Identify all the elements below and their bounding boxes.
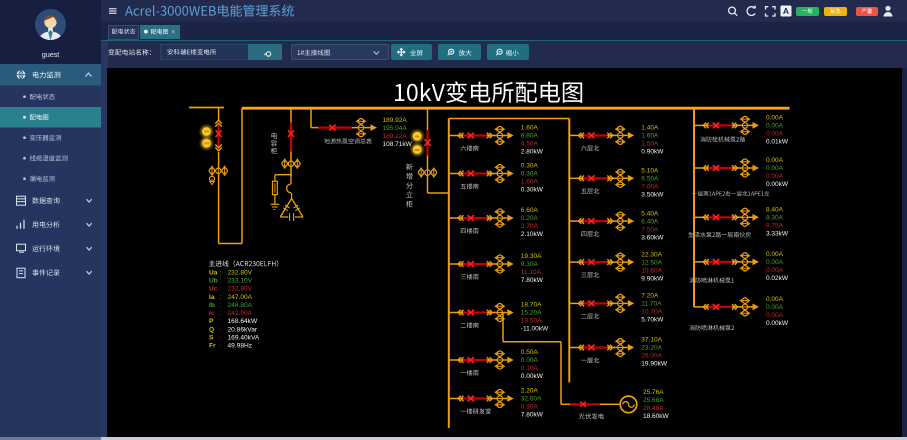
svg-text:242.00A: 242.00A bbox=[228, 310, 253, 317]
svg-text:1.60A: 1.60A bbox=[521, 179, 539, 186]
svg-text::: : bbox=[220, 335, 222, 342]
svg-text:0.90A: 0.90A bbox=[521, 404, 539, 411]
svg-text:2.80kW: 2.80kW bbox=[521, 149, 544, 156]
svg-text:168.64kW: 168.64kW bbox=[228, 318, 258, 325]
svg-text:5.10A: 5.10A bbox=[641, 168, 659, 175]
svg-text:7.80kW: 7.80kW bbox=[521, 412, 544, 419]
svg-text:Ic: Ic bbox=[209, 310, 215, 317]
svg-text:1.60A: 1.60A bbox=[641, 133, 659, 140]
svg-text:Ub: Ub bbox=[209, 277, 218, 284]
svg-text::: : bbox=[220, 277, 222, 284]
svg-text:0.30A: 0.30A bbox=[521, 163, 539, 170]
svg-text:15.20A: 15.20A bbox=[521, 310, 542, 317]
svg-text::: : bbox=[220, 302, 222, 309]
svg-text:3.70A: 3.70A bbox=[521, 223, 539, 230]
svg-text:8.40A: 8.40A bbox=[766, 207, 784, 214]
svg-text:ON: ON bbox=[415, 134, 420, 138]
svg-text:0.02kW: 0.02kW bbox=[766, 275, 789, 282]
svg-text:0.00A: 0.00A bbox=[766, 165, 784, 172]
svg-text:P: P bbox=[209, 318, 214, 325]
svg-text:18.60kW: 18.60kW bbox=[643, 413, 670, 420]
svg-text:232.80V: 232.80V bbox=[228, 269, 253, 276]
svg-text:3.33kW: 3.33kW bbox=[766, 231, 789, 238]
svg-text:108.71kW: 108.71kW bbox=[383, 141, 413, 148]
svg-text:6.60A: 6.60A bbox=[521, 207, 539, 214]
svg-text:20.86kVar: 20.86kVar bbox=[228, 326, 258, 333]
svg-text:Ia: Ia bbox=[209, 294, 215, 301]
svg-text:11.10A: 11.10A bbox=[521, 269, 542, 276]
svg-text:0.00A: 0.00A bbox=[766, 312, 784, 319]
svg-text:4.50A: 4.50A bbox=[521, 141, 539, 148]
svg-text:2.10kW: 2.10kW bbox=[521, 231, 544, 238]
svg-text:5.40A: 5.40A bbox=[641, 210, 659, 217]
svg-text::: : bbox=[220, 326, 222, 333]
svg-text:5.70kW: 5.70kW bbox=[641, 317, 664, 324]
svg-text:3.60kW: 3.60kW bbox=[641, 234, 664, 241]
svg-text::: : bbox=[220, 269, 222, 276]
svg-text:9.30A: 9.30A bbox=[521, 261, 539, 268]
svg-text:0.00A: 0.00A bbox=[766, 173, 784, 180]
svg-text:0.00kW: 0.00kW bbox=[521, 373, 544, 380]
svg-text:7.50A: 7.50A bbox=[641, 226, 659, 233]
svg-text:23.20A: 23.20A bbox=[641, 345, 662, 352]
svg-text:22.30A: 22.30A bbox=[641, 251, 662, 258]
svg-text:169.40kVA: 169.40kVA bbox=[228, 335, 260, 342]
svg-text:19.30A: 19.30A bbox=[521, 253, 542, 260]
svg-text:0.00A: 0.00A bbox=[766, 304, 784, 311]
svg-text:2.20A: 2.20A bbox=[521, 388, 539, 395]
svg-text::: : bbox=[220, 318, 222, 325]
svg-text:189.12A: 189.12A bbox=[383, 133, 408, 140]
svg-text:0.00A: 0.00A bbox=[766, 267, 784, 274]
svg-text:0.00kW: 0.00kW bbox=[766, 320, 789, 327]
svg-text:Ib: Ib bbox=[209, 302, 215, 309]
svg-text:0.00A: 0.00A bbox=[766, 157, 784, 164]
svg-text:0.90kW: 0.90kW bbox=[641, 149, 664, 156]
svg-text:0.00A: 0.00A bbox=[521, 357, 539, 364]
svg-text:49.98Hz: 49.98Hz bbox=[228, 343, 253, 350]
svg-text:1.40A: 1.40A bbox=[641, 125, 659, 132]
svg-text:0.10A: 0.10A bbox=[521, 365, 539, 372]
svg-text:6.40A: 6.40A bbox=[641, 218, 659, 225]
svg-text:12.50A: 12.50A bbox=[641, 259, 662, 266]
svg-text:8.30A: 8.30A bbox=[766, 215, 784, 222]
svg-text:guest: guest bbox=[42, 50, 60, 59]
svg-text:0.00kW: 0.00kW bbox=[766, 181, 789, 188]
svg-text::: : bbox=[220, 286, 222, 293]
svg-text:32.60A: 32.60A bbox=[521, 396, 542, 403]
svg-text:0.00A: 0.00A bbox=[766, 115, 784, 122]
svg-text:8.75A: 8.75A bbox=[766, 223, 784, 230]
svg-text:18.70A: 18.70A bbox=[521, 302, 542, 309]
svg-text:OFF: OFF bbox=[204, 141, 210, 145]
svg-text:S: S bbox=[209, 335, 214, 342]
svg-text:7.20A: 7.20A bbox=[641, 293, 659, 300]
svg-text:19.90kW: 19.90kW bbox=[641, 361, 668, 368]
svg-text:6.80A: 6.80A bbox=[521, 133, 539, 140]
svg-text:15.60A: 15.60A bbox=[641, 267, 662, 274]
svg-text::: : bbox=[220, 343, 222, 350]
svg-text:A: A bbox=[783, 6, 789, 16]
svg-text:0.30kW: 0.30kW bbox=[521, 187, 544, 194]
svg-text:7.00A: 7.00A bbox=[641, 184, 659, 191]
svg-text:1.60A: 1.60A bbox=[521, 125, 539, 132]
svg-text:11.70A: 11.70A bbox=[641, 301, 662, 308]
svg-text:26.00A: 26.00A bbox=[641, 353, 662, 360]
svg-text:-11.00kW: -11.00kW bbox=[521, 326, 549, 333]
svg-text:Fr: Fr bbox=[209, 343, 216, 350]
svg-text:189.92A: 189.92A bbox=[383, 117, 408, 124]
svg-text:Ua: Ua bbox=[209, 269, 218, 276]
svg-text:0.50A: 0.50A bbox=[521, 349, 539, 356]
svg-text:232.80V: 232.80V bbox=[228, 286, 253, 293]
svg-text:37.10A: 37.10A bbox=[641, 337, 662, 344]
svg-text:OFF: OFF bbox=[414, 148, 420, 152]
svg-text:9.90kW: 9.90kW bbox=[641, 275, 664, 282]
svg-text:247.00A: 247.00A bbox=[228, 294, 253, 301]
svg-text:0.30A: 0.30A bbox=[521, 171, 539, 178]
svg-text:0.00A: 0.00A bbox=[766, 296, 784, 303]
svg-text:0.00A: 0.00A bbox=[766, 259, 784, 266]
svg-text:0.01kW: 0.01kW bbox=[766, 139, 789, 146]
svg-text:×: × bbox=[172, 30, 176, 36]
svg-text:Q: Q bbox=[209, 326, 214, 333]
svg-text:6.50A: 6.50A bbox=[641, 176, 659, 183]
svg-text:0.20A: 0.20A bbox=[521, 215, 539, 222]
svg-text:Uc: Uc bbox=[209, 286, 218, 293]
svg-text:25.76A: 25.76A bbox=[643, 389, 664, 396]
svg-text:1.50A: 1.50A bbox=[641, 141, 659, 148]
svg-text:10.70A: 10.70A bbox=[641, 309, 662, 316]
svg-text:ON: ON bbox=[204, 130, 209, 134]
svg-text:25.68A: 25.68A bbox=[643, 397, 664, 404]
svg-text:195.04A: 195.04A bbox=[383, 125, 408, 132]
svg-text:3.50kW: 3.50kW bbox=[641, 192, 664, 199]
svg-text:19.50A: 19.50A bbox=[521, 318, 542, 325]
svg-text:0.00A: 0.00A bbox=[766, 123, 784, 130]
svg-text:28.48A: 28.48A bbox=[643, 405, 664, 412]
svg-text:7.80kW: 7.80kW bbox=[521, 277, 544, 284]
svg-text:248.80A: 248.80A bbox=[228, 302, 253, 309]
svg-text:0.00A: 0.00A bbox=[766, 251, 784, 258]
svg-text::: : bbox=[220, 310, 222, 317]
svg-text::: : bbox=[220, 294, 222, 301]
svg-text:233.10V: 233.10V bbox=[228, 277, 253, 284]
svg-text:0.00A: 0.00A bbox=[766, 131, 784, 138]
